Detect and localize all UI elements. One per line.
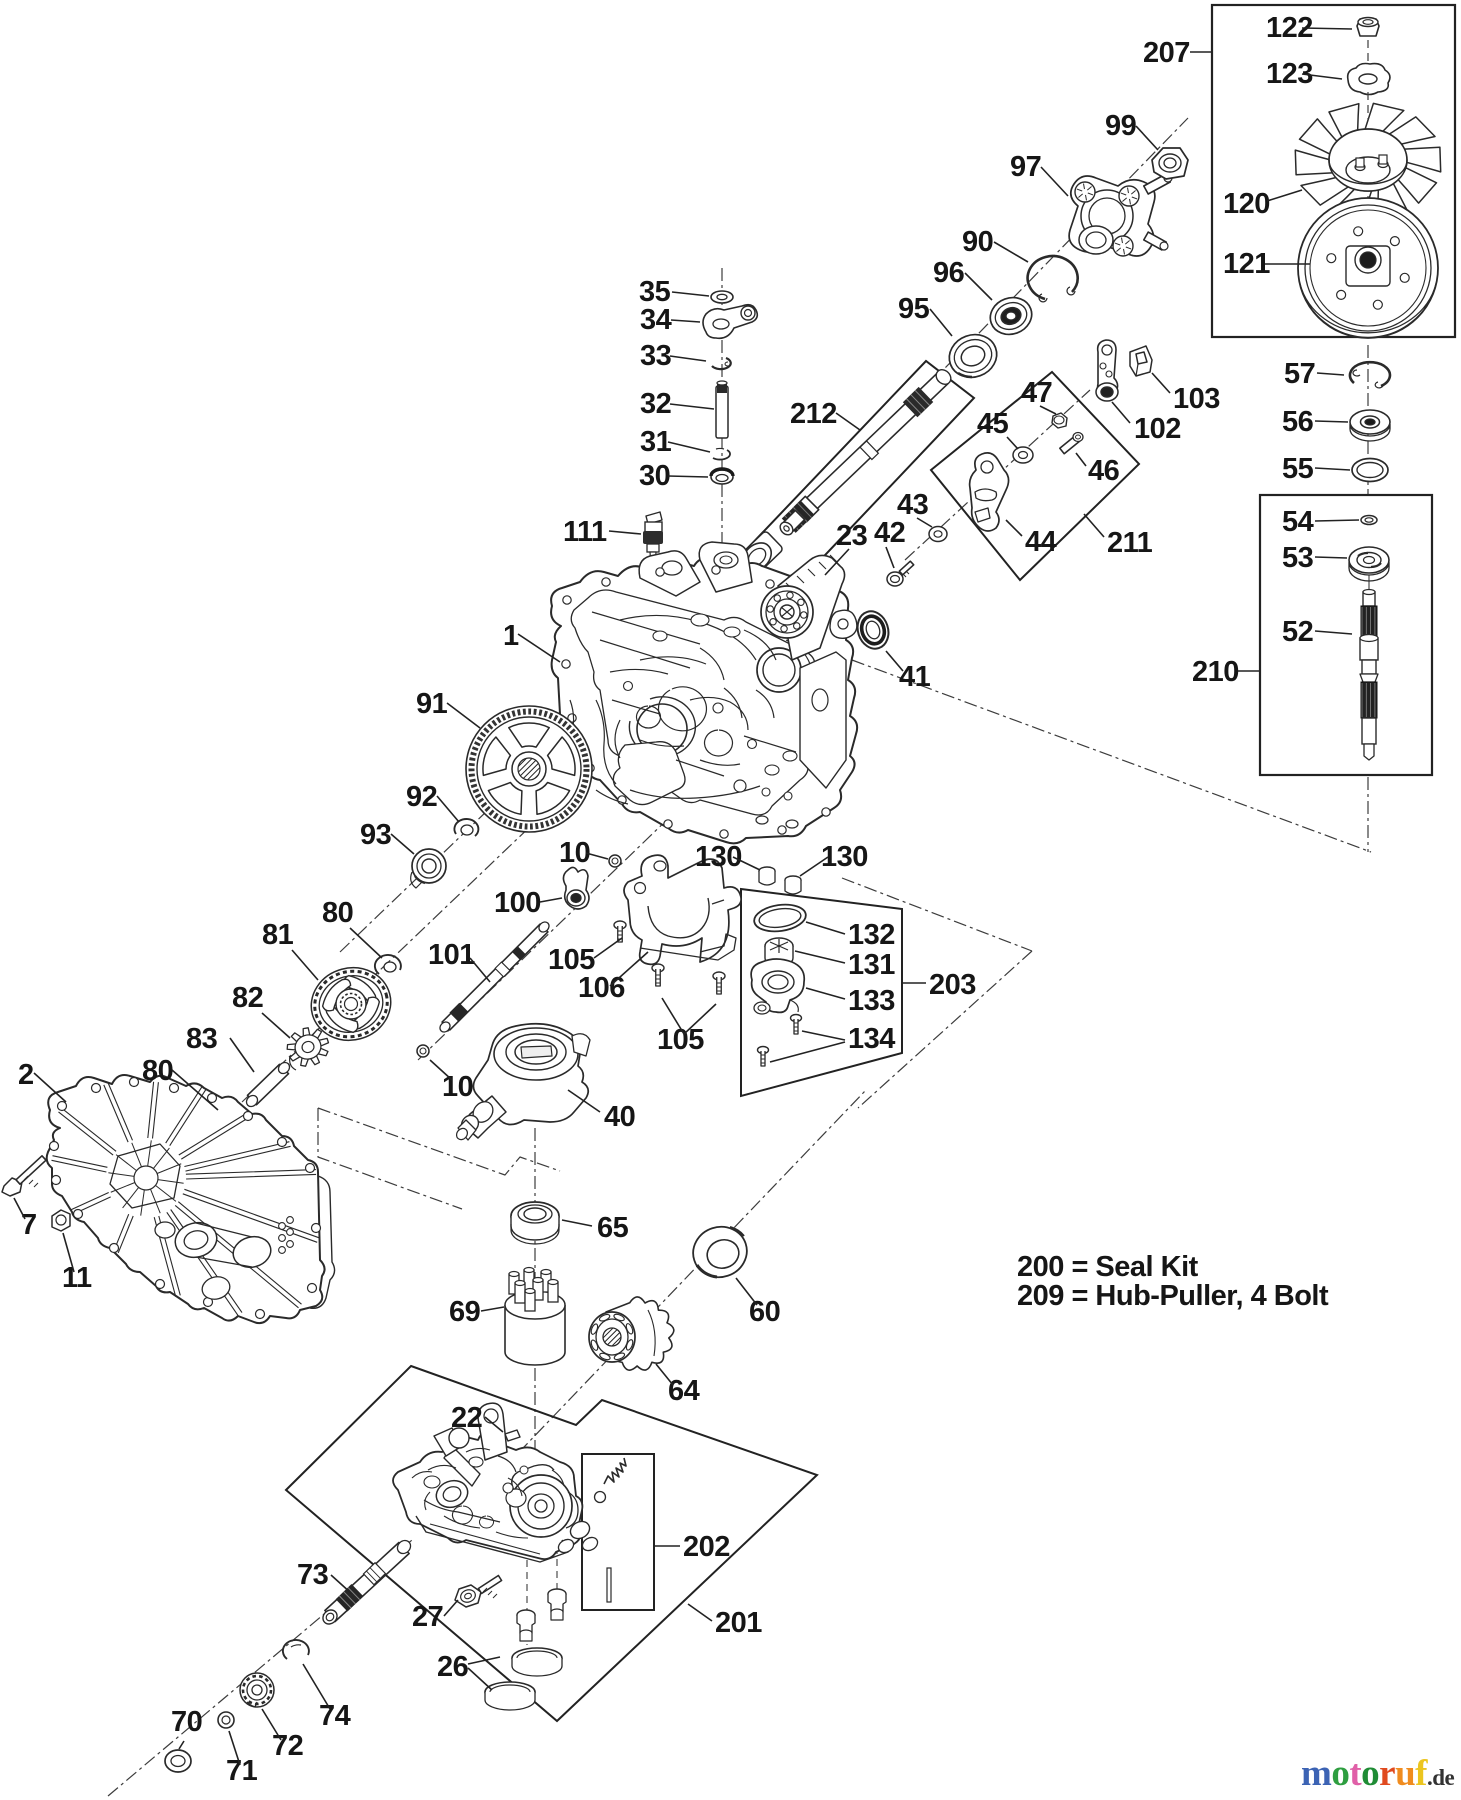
svg-text:64: 64: [668, 1375, 700, 1407]
svg-text:102: 102: [1134, 413, 1181, 445]
svg-text:34: 34: [640, 304, 672, 336]
svg-text:209 = Hub-Puller, 4 Bolt: 209 = Hub-Puller, 4 Bolt: [1017, 1280, 1329, 1312]
svg-text:71: 71: [226, 1755, 258, 1787]
svg-text:55: 55: [1282, 453, 1314, 485]
svg-text:2: 2: [18, 1059, 34, 1091]
svg-text:212: 212: [790, 398, 837, 430]
svg-text:91: 91: [416, 688, 448, 720]
svg-text:134: 134: [848, 1023, 895, 1055]
svg-text:130: 130: [821, 841, 868, 873]
svg-text:56: 56: [1282, 406, 1314, 438]
svg-text:81: 81: [262, 919, 294, 951]
svg-text:46: 46: [1088, 455, 1120, 487]
svg-text:53: 53: [1282, 542, 1314, 574]
svg-text:200 = Seal Kit: 200 = Seal Kit: [1017, 1251, 1199, 1283]
svg-text:42: 42: [874, 517, 905, 549]
svg-text:99: 99: [1105, 110, 1137, 142]
svg-text:133: 133: [848, 985, 895, 1017]
svg-text:22: 22: [451, 1402, 482, 1434]
svg-text:203: 203: [929, 969, 976, 1001]
svg-text:23: 23: [836, 520, 868, 552]
svg-text:33: 33: [640, 340, 672, 372]
svg-text:47: 47: [1021, 377, 1052, 409]
svg-text:43: 43: [897, 489, 929, 521]
svg-text:121: 121: [1223, 248, 1270, 280]
svg-text:93: 93: [360, 819, 392, 851]
svg-text:31: 31: [640, 426, 672, 458]
svg-text:211: 211: [1107, 527, 1153, 559]
svg-text:40: 40: [604, 1101, 635, 1133]
svg-text:92: 92: [406, 781, 437, 813]
svg-text:26: 26: [437, 1651, 469, 1683]
svg-text:101: 101: [428, 939, 475, 971]
svg-text:11: 11: [62, 1262, 92, 1294]
svg-text:100: 100: [494, 887, 541, 919]
svg-text:130: 130: [695, 841, 742, 873]
svg-text:95: 95: [898, 293, 930, 325]
svg-text:32: 32: [640, 388, 671, 420]
svg-text:207: 207: [1143, 37, 1190, 69]
svg-text:80: 80: [142, 1055, 173, 1087]
svg-text:30: 30: [639, 460, 670, 492]
svg-text:83: 83: [186, 1023, 218, 1055]
svg-text:131: 131: [848, 949, 895, 981]
svg-text:27: 27: [412, 1601, 443, 1633]
svg-text:202: 202: [683, 1531, 730, 1563]
svg-text:96: 96: [933, 257, 965, 289]
svg-text:70: 70: [171, 1706, 202, 1738]
svg-text:106: 106: [578, 972, 625, 1004]
svg-text:41: 41: [899, 661, 931, 693]
svg-text:90: 90: [962, 226, 993, 258]
svg-text:69: 69: [449, 1296, 481, 1328]
svg-text:10: 10: [559, 837, 590, 869]
svg-text:201: 201: [715, 1607, 762, 1639]
svg-text:210: 210: [1192, 656, 1239, 688]
svg-text:54: 54: [1282, 506, 1314, 538]
svg-text:97: 97: [1010, 151, 1041, 183]
svg-text:80: 80: [322, 897, 353, 929]
svg-text:74: 74: [319, 1700, 351, 1732]
svg-text:103: 103: [1173, 383, 1220, 415]
svg-text:57: 57: [1284, 358, 1315, 390]
svg-text:44: 44: [1025, 526, 1057, 558]
svg-text:52: 52: [1282, 616, 1313, 648]
svg-text:1: 1: [503, 620, 519, 652]
svg-text:132: 132: [848, 919, 895, 951]
svg-text:72: 72: [272, 1730, 303, 1762]
svg-text:120: 120: [1223, 188, 1270, 220]
svg-text:111: 111: [563, 516, 607, 548]
svg-text:82: 82: [232, 982, 263, 1014]
svg-text:7: 7: [21, 1209, 37, 1241]
svg-text:45: 45: [977, 408, 1009, 440]
svg-text:73: 73: [297, 1559, 329, 1591]
svg-text:65: 65: [597, 1212, 629, 1244]
